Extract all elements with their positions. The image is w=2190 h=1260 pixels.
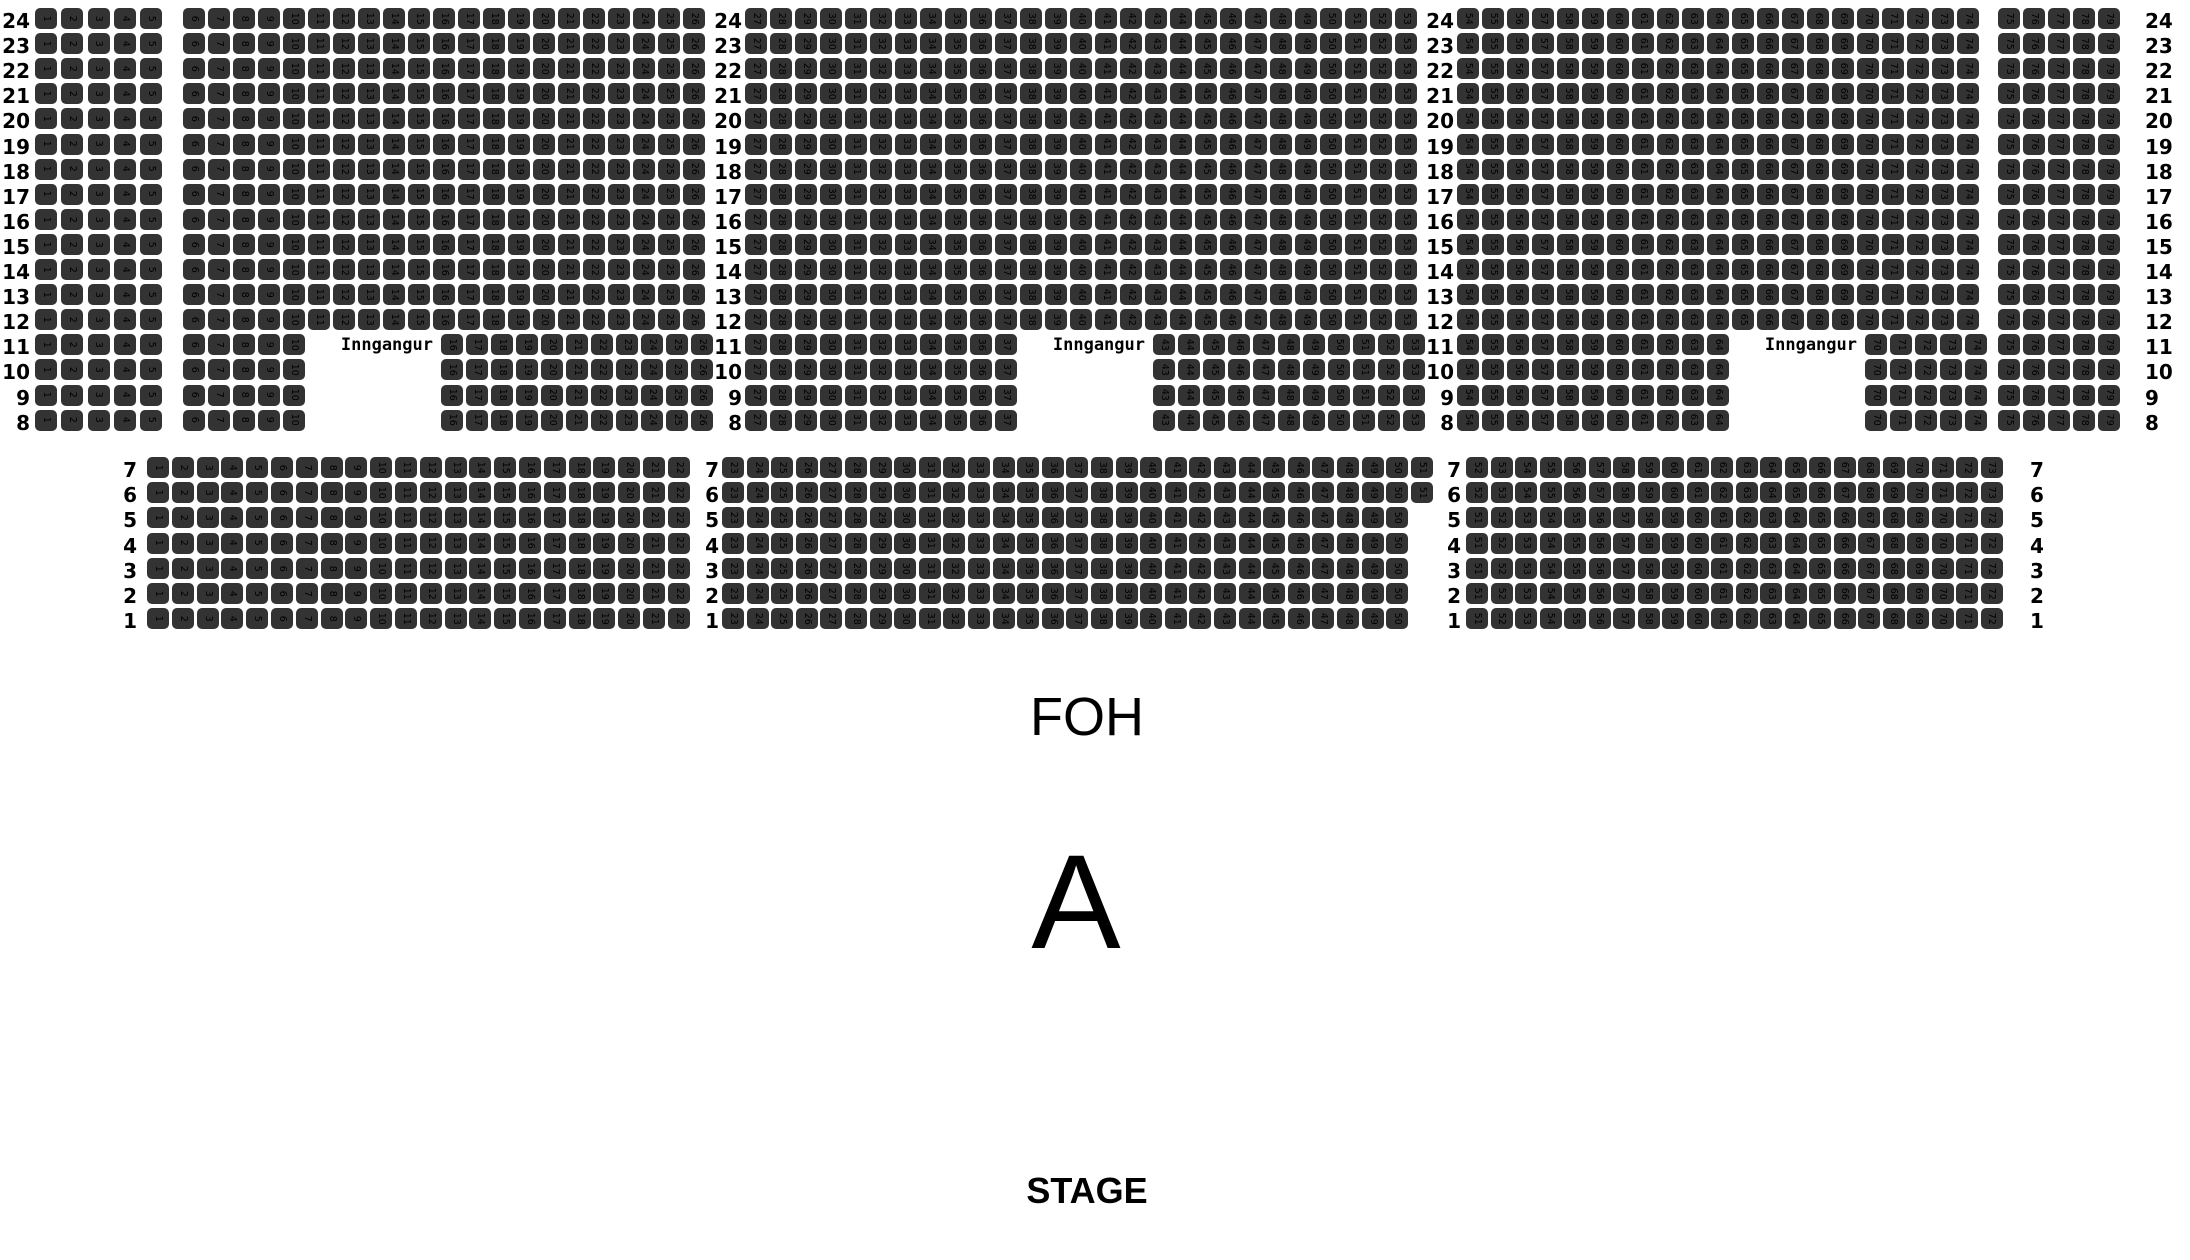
seat[interactable]: 71 [1932,482,1954,503]
seat[interactable]: 66 [1809,482,1831,503]
seat[interactable]: 77 [2048,284,2070,305]
seat[interactable]: 66 [1757,234,1779,255]
seat[interactable]: 57 [1613,558,1635,579]
seat[interactable]: 63 [1736,482,1758,503]
seat[interactable]: 14 [383,184,405,205]
seat[interactable]: 75 [1998,284,2020,305]
seat[interactable]: 65 [1732,209,1754,230]
seat[interactable]: 30 [820,58,842,79]
seat[interactable]: 33 [895,334,917,355]
seat[interactable]: 20 [533,209,555,230]
seat[interactable]: 25 [658,209,680,230]
seat[interactable]: 20 [618,457,640,478]
seat[interactable]: 45 [1263,457,1285,478]
seat[interactable]: 42 [1120,184,1142,205]
seat[interactable]: 44 [1170,259,1192,280]
seat[interactable]: 74 [1957,309,1979,330]
seat[interactable]: 15 [408,58,430,79]
seat[interactable]: 34 [920,33,942,54]
seat[interactable]: 4 [114,58,136,79]
seat[interactable]: 58 [1638,533,1660,554]
seat[interactable]: 76 [2023,284,2045,305]
seat[interactable]: 33 [895,385,917,406]
seat[interactable]: 10 [283,159,305,180]
seat[interactable]: 66 [1834,608,1856,629]
seat[interactable]: 24 [641,334,663,355]
seat[interactable]: 41 [1165,507,1187,528]
seat[interactable]: 73 [1940,385,1962,406]
seat[interactable]: 32 [870,159,892,180]
seat[interactable]: 79 [2098,83,2120,104]
seat[interactable]: 7 [296,507,318,528]
seat[interactable]: 42 [1120,8,1142,29]
seat[interactable]: 35 [945,83,967,104]
seat[interactable]: 70 [1857,134,1879,155]
seat[interactable]: 30 [894,507,916,528]
seat[interactable]: 4 [114,309,136,330]
seat[interactable]: 58 [1557,309,1579,330]
seat[interactable]: 62 [1657,184,1679,205]
seat[interactable]: 46 [1288,558,1310,579]
seat[interactable]: 1 [35,8,57,29]
seat[interactable]: 77 [2048,108,2070,129]
seat[interactable]: 61 [1632,184,1654,205]
seat[interactable]: 19 [508,259,530,280]
seat[interactable]: 52 [1370,108,1392,129]
seat[interactable]: 19 [508,184,530,205]
seat[interactable]: 41 [1095,209,1117,230]
seat[interactable]: 49 [1362,457,1384,478]
seat[interactable]: 9 [258,33,280,54]
seat[interactable]: 9 [258,385,280,406]
seat[interactable]: 19 [508,108,530,129]
seat[interactable]: 57 [1532,58,1554,79]
seat[interactable]: 34 [920,108,942,129]
seat[interactable]: 47 [1245,8,1267,29]
seat[interactable]: 11 [308,209,330,230]
seat[interactable]: 46 [1220,184,1242,205]
seat[interactable]: 50 [1328,385,1350,406]
seat[interactable]: 24 [747,507,769,528]
seat[interactable]: 79 [2098,284,2120,305]
seat[interactable]: 10 [370,583,392,604]
seat[interactable]: 25 [658,83,680,104]
seat[interactable]: 37 [995,410,1017,431]
seat[interactable]: 69 [1832,234,1854,255]
seat[interactable]: 6 [183,209,205,230]
seat[interactable]: 55 [1482,334,1504,355]
seat[interactable]: 67 [1782,234,1804,255]
seat[interactable]: 60 [1607,33,1629,54]
seat[interactable]: 42 [1120,259,1142,280]
seat[interactable]: 57 [1589,457,1611,478]
seat[interactable]: 33 [895,159,917,180]
seat[interactable]: 7 [208,234,230,255]
seat[interactable]: 45 [1195,134,1217,155]
seat[interactable]: 54 [1540,608,1562,629]
seat[interactable]: 43 [1145,159,1167,180]
seat[interactable]: 71 [1956,583,1978,604]
seat[interactable]: 78 [2073,334,2095,355]
seat[interactable]: 78 [2073,83,2095,104]
seat[interactable]: 22 [583,8,605,29]
seat[interactable]: 72 [1981,583,2003,604]
seat[interactable]: 22 [583,209,605,230]
seat[interactable]: 4 [221,533,243,554]
seat[interactable]: 58 [1557,33,1579,54]
seat[interactable]: 27 [820,608,842,629]
seat[interactable]: 22 [583,134,605,155]
seat[interactable]: 48 [1278,334,1300,355]
seat[interactable]: 66 [1757,134,1779,155]
seat[interactable]: 12 [333,159,355,180]
seat[interactable]: 70 [1932,507,1954,528]
seat[interactable]: 41 [1095,108,1117,129]
seat[interactable]: 48 [1337,583,1359,604]
seat[interactable]: 37 [1066,507,1088,528]
seat[interactable]: 54 [1457,284,1479,305]
seat[interactable]: 58 [1638,583,1660,604]
seat[interactable]: 40 [1070,159,1092,180]
seat[interactable]: 48 [1337,533,1359,554]
seat[interactable]: 7 [296,583,318,604]
seat[interactable]: 27 [820,507,842,528]
seat[interactable]: 66 [1757,309,1779,330]
seat[interactable]: 12 [420,482,442,503]
seat[interactable]: 18 [483,234,505,255]
seat[interactable]: 55 [1482,8,1504,29]
seat[interactable]: 79 [2098,184,2120,205]
seat[interactable]: 49 [1303,334,1325,355]
seat[interactable]: 50 [1320,8,1342,29]
seat[interactable]: 62 [1736,558,1758,579]
seat[interactable]: 3 [197,533,219,554]
seat[interactable]: 6 [271,583,293,604]
seat[interactable]: 30 [820,359,842,380]
seat[interactable]: 55 [1482,259,1504,280]
seat[interactable]: 44 [1170,83,1192,104]
seat[interactable]: 45 [1203,410,1225,431]
seat[interactable]: 13 [358,159,380,180]
seat[interactable]: 24 [633,259,655,280]
seat[interactable]: 35 [1017,507,1039,528]
seat[interactable]: 64 [1707,284,1729,305]
seat[interactable]: 33 [895,209,917,230]
seat[interactable]: 44 [1170,309,1192,330]
seat[interactable]: 42 [1120,134,1142,155]
seat[interactable]: 48 [1270,309,1292,330]
seat[interactable]: 35 [945,209,967,230]
seat[interactable]: 60 [1607,284,1629,305]
seat[interactable]: 48 [1337,482,1359,503]
seat[interactable]: 49 [1295,259,1317,280]
seat[interactable]: 28 [845,482,867,503]
seat[interactable]: 8 [233,259,255,280]
seat[interactable]: 45 [1263,558,1285,579]
seat[interactable]: 19 [593,533,615,554]
seat[interactable]: 21 [558,33,580,54]
seat[interactable]: 79 [2098,334,2120,355]
seat[interactable]: 69 [1832,33,1854,54]
seat[interactable]: 16 [441,410,463,431]
seat[interactable]: 75 [1998,309,2020,330]
seat[interactable]: 68 [1883,533,1905,554]
seat[interactable]: 16 [433,209,455,230]
seat[interactable]: 73 [1981,482,2003,503]
seat[interactable]: 37 [995,33,1017,54]
seat[interactable]: 34 [993,457,1015,478]
seat[interactable]: 48 [1337,608,1359,629]
seat[interactable]: 6 [271,558,293,579]
seat[interactable]: 42 [1120,33,1142,54]
seat[interactable]: 26 [796,533,818,554]
seat[interactable]: 43 [1153,385,1175,406]
seat[interactable]: 49 [1295,134,1317,155]
seat[interactable]: 12 [333,234,355,255]
seat[interactable]: 5 [140,234,162,255]
seat[interactable]: 49 [1295,234,1317,255]
seat[interactable]: 63 [1760,558,1782,579]
seat[interactable]: 22 [591,410,613,431]
seat[interactable]: 28 [770,108,792,129]
seat[interactable]: 76 [2023,108,2045,129]
seat[interactable]: 25 [658,134,680,155]
seat[interactable]: 74 [1957,134,1979,155]
seat[interactable]: 39 [1045,8,1067,29]
seat[interactable]: 73 [1932,83,1954,104]
seat[interactable]: 37 [995,309,1017,330]
seat[interactable]: 17 [544,507,566,528]
seat[interactable]: 7 [208,184,230,205]
seat[interactable]: 55 [1564,558,1586,579]
seat[interactable]: 40 [1070,284,1092,305]
seat[interactable]: 44 [1178,334,1200,355]
seat[interactable]: 54 [1457,410,1479,431]
seat[interactable]: 60 [1607,83,1629,104]
seat[interactable]: 40 [1070,259,1092,280]
seat[interactable]: 11 [308,159,330,180]
seat[interactable]: 62 [1657,108,1679,129]
seat[interactable]: 5 [140,334,162,355]
seat[interactable]: 24 [633,8,655,29]
seat[interactable]: 27 [745,334,767,355]
seat[interactable]: 16 [433,108,455,129]
seat[interactable]: 49 [1362,507,1384,528]
seat[interactable]: 36 [1042,457,1064,478]
seat[interactable]: 21 [566,334,588,355]
seat[interactable]: 75 [1998,184,2020,205]
seat[interactable]: 57 [1532,184,1554,205]
seat[interactable]: 78 [2073,209,2095,230]
seat[interactable]: 76 [2023,33,2045,54]
seat[interactable]: 44 [1178,359,1200,380]
seat[interactable]: 34 [920,385,942,406]
seat[interactable]: 24 [633,58,655,79]
seat[interactable]: 71 [1882,209,1904,230]
seat[interactable]: 72 [1915,359,1937,380]
seat[interactable]: 44 [1170,159,1192,180]
seat[interactable]: 32 [943,533,965,554]
seat[interactable]: 6 [183,385,205,406]
seat[interactable]: 76 [2023,134,2045,155]
seat[interactable]: 26 [796,457,818,478]
seat[interactable]: 77 [2048,184,2070,205]
seat[interactable]: 1 [35,209,57,230]
seat[interactable]: 77 [2048,334,2070,355]
seat[interactable]: 62 [1657,284,1679,305]
seat[interactable]: 78 [2073,159,2095,180]
seat[interactable]: 17 [466,359,488,380]
seat[interactable]: 20 [533,259,555,280]
seat[interactable]: 33 [895,58,917,79]
seat[interactable]: 15 [408,159,430,180]
seat[interactable]: 74 [1957,108,1979,129]
seat[interactable]: 58 [1557,184,1579,205]
seat[interactable]: 52 [1370,259,1392,280]
seat[interactable]: 31 [919,608,941,629]
seat[interactable]: 19 [516,410,538,431]
seat[interactable]: 1 [147,558,169,579]
seat[interactable]: 8 [321,507,343,528]
seat[interactable]: 54 [1540,507,1562,528]
seat[interactable]: 46 [1220,284,1242,305]
seat[interactable]: 31 [845,58,867,79]
seat[interactable]: 27 [745,385,767,406]
seat[interactable]: 26 [796,583,818,604]
seat[interactable]: 32 [870,334,892,355]
seat[interactable]: 70 [1857,108,1879,129]
seat[interactable]: 29 [870,457,892,478]
seat[interactable]: 65 [1809,608,1831,629]
seat[interactable]: 34 [993,608,1015,629]
seat[interactable]: 37 [1066,558,1088,579]
seat[interactable]: 75 [1998,134,2020,155]
seat[interactable]: 49 [1295,58,1317,79]
seat[interactable]: 19 [508,309,530,330]
seat[interactable]: 28 [845,507,867,528]
seat[interactable]: 72 [1907,108,1929,129]
seat[interactable]: 5 [140,284,162,305]
seat[interactable]: 8 [321,558,343,579]
seat[interactable]: 64 [1785,583,1807,604]
seat[interactable]: 73 [1932,58,1954,79]
seat[interactable]: 70 [1932,583,1954,604]
seat[interactable]: 70 [1932,533,1954,554]
seat[interactable]: 9 [345,507,367,528]
seat[interactable]: 63 [1682,359,1704,380]
seat[interactable]: 66 [1757,209,1779,230]
seat[interactable]: 7 [208,385,230,406]
seat[interactable]: 30 [894,583,916,604]
seat[interactable]: 16 [519,583,541,604]
seat[interactable]: 56 [1507,58,1529,79]
seat[interactable]: 66 [1757,8,1779,29]
seat[interactable]: 68 [1807,234,1829,255]
seat[interactable]: 74 [1957,8,1979,29]
seat[interactable]: 19 [508,8,530,29]
seat[interactable]: 12 [333,184,355,205]
seat[interactable]: 57 [1532,259,1554,280]
seat[interactable]: 69 [1832,58,1854,79]
seat[interactable]: 47 [1312,507,1334,528]
seat[interactable]: 79 [2098,108,2120,129]
seat[interactable]: 5 [140,309,162,330]
seat[interactable]: 72 [1907,83,1929,104]
seat[interactable]: 44 [1239,482,1261,503]
seat[interactable]: 58 [1638,608,1660,629]
seat[interactable]: 75 [1998,334,2020,355]
seat[interactable]: 70 [1857,309,1879,330]
seat[interactable]: 47 [1312,457,1334,478]
seat[interactable]: 31 [845,334,867,355]
seat[interactable]: 42 [1189,533,1211,554]
seat[interactable]: 15 [408,259,430,280]
seat[interactable]: 65 [1732,184,1754,205]
seat[interactable]: 8 [233,184,255,205]
seat[interactable]: 29 [870,533,892,554]
seat[interactable]: 31 [919,558,941,579]
seat[interactable]: 60 [1607,234,1629,255]
seat[interactable]: 1 [35,410,57,431]
seat[interactable]: 63 [1760,608,1782,629]
seat[interactable]: 3 [88,234,110,255]
seat[interactable]: 62 [1736,583,1758,604]
seat[interactable]: 40 [1070,309,1092,330]
seat[interactable]: 36 [970,184,992,205]
seat[interactable]: 32 [870,209,892,230]
seat[interactable]: 15 [494,583,516,604]
seat[interactable]: 44 [1170,58,1192,79]
seat[interactable]: 1 [35,134,57,155]
seat[interactable]: 55 [1564,533,1586,554]
seat[interactable]: 10 [370,507,392,528]
seat[interactable]: 2 [61,259,83,280]
seat[interactable]: 2 [61,159,83,180]
seat[interactable]: 53 [1491,482,1513,503]
seat[interactable]: 63 [1682,259,1704,280]
seat[interactable]: 9 [258,259,280,280]
seat[interactable]: 25 [771,507,793,528]
seat[interactable]: 67 [1782,33,1804,54]
seat[interactable]: 51 [1466,558,1488,579]
seat[interactable]: 54 [1457,159,1479,180]
seat[interactable]: 1 [147,482,169,503]
seat[interactable]: 29 [795,134,817,155]
seat[interactable]: 18 [483,159,505,180]
seat[interactable]: 16 [441,359,463,380]
seat[interactable]: 57 [1532,209,1554,230]
seat[interactable]: 68 [1807,108,1829,129]
seat[interactable]: 55 [1564,608,1586,629]
seat[interactable]: 51 [1466,608,1488,629]
seat[interactable]: 24 [747,457,769,478]
seat[interactable]: 11 [308,83,330,104]
seat[interactable]: 50 [1328,359,1350,380]
seat[interactable]: 61 [1711,583,1733,604]
seat[interactable]: 33 [968,583,990,604]
seat[interactable]: 63 [1760,583,1782,604]
seat[interactable]: 56 [1589,533,1611,554]
seat[interactable]: 43 [1214,507,1236,528]
seat[interactable]: 21 [558,309,580,330]
seat[interactable]: 77 [2048,8,2070,29]
seat[interactable]: 41 [1165,558,1187,579]
seat[interactable]: 17 [458,159,480,180]
seat[interactable]: 58 [1557,209,1579,230]
seat[interactable]: 54 [1457,108,1479,129]
seat[interactable]: 56 [1589,507,1611,528]
seat[interactable]: 54 [1457,58,1479,79]
